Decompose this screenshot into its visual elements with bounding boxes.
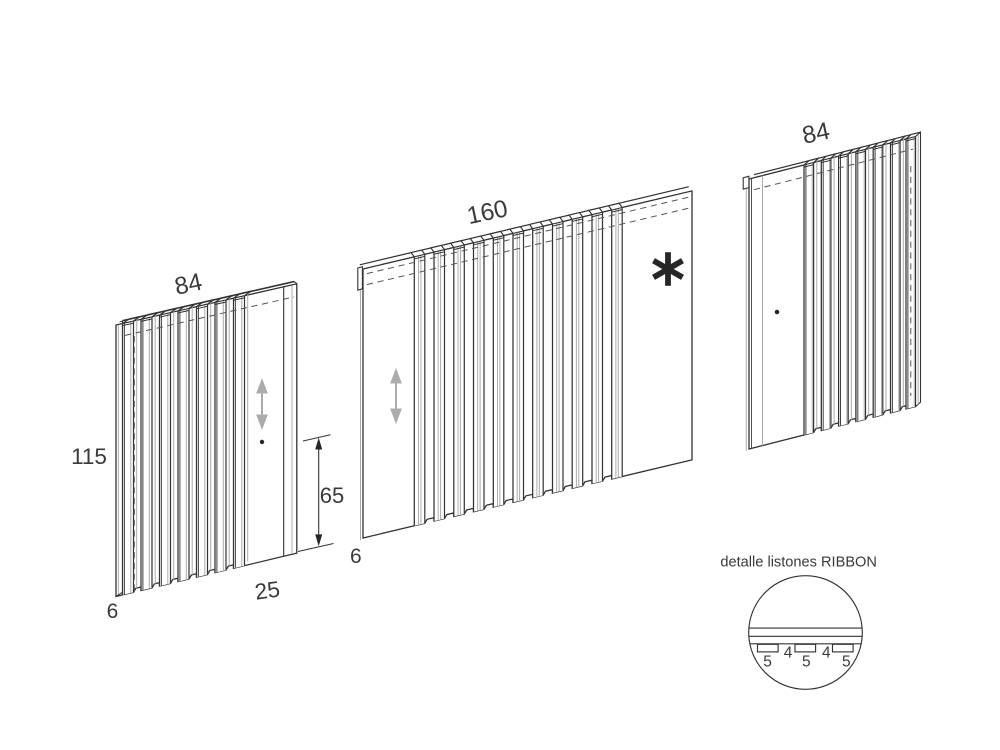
svg-text:4: 4 bbox=[822, 645, 831, 662]
svg-text:6: 6 bbox=[350, 545, 362, 568]
svg-text:84: 84 bbox=[800, 118, 832, 150]
svg-text:5: 5 bbox=[842, 654, 851, 671]
svg-text:25: 25 bbox=[253, 576, 281, 604]
svg-text:5: 5 bbox=[763, 654, 772, 671]
svg-text:84: 84 bbox=[172, 269, 204, 301]
svg-text:detalle listones RIBBON: detalle listones RIBBON bbox=[720, 555, 877, 571]
svg-text:5: 5 bbox=[802, 654, 811, 671]
svg-text:4: 4 bbox=[784, 645, 793, 662]
svg-text:6: 6 bbox=[107, 600, 119, 623]
svg-text:65: 65 bbox=[320, 483, 344, 508]
svg-text:115: 115 bbox=[71, 444, 107, 469]
